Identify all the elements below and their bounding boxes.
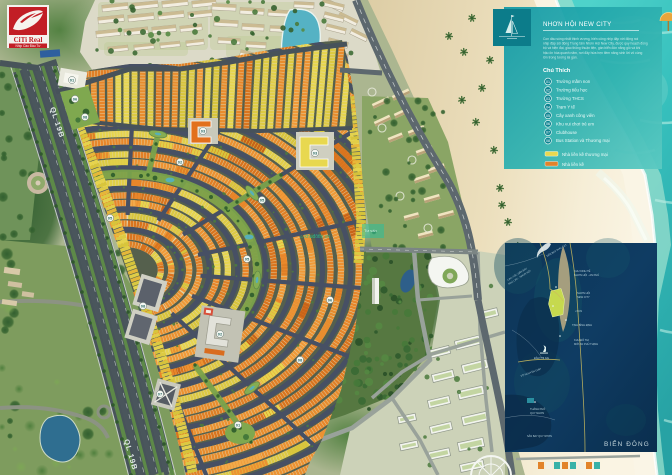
svg-text:ĐẦM THỊ NẠI: ĐẦM THỊ NẠI	[534, 357, 549, 360]
svg-text:Cây xanh công viên: Cây xanh công viên	[556, 113, 595, 118]
svg-text:NEW CITY: NEW CITY	[577, 295, 590, 299]
svg-text:Nhịp Cầu Đầu Tư: Nhịp Cầu Đầu Tư	[16, 44, 42, 48]
svg-text:08: 08	[141, 304, 146, 309]
svg-text:01: 01	[546, 80, 550, 84]
svg-text:bộ và hiện đại, giao thông thu: bộ và hiện đại, giao thông thuận tiện, g…	[543, 45, 640, 50]
svg-text:TỊNH BÌNH ĐỊNH: TỊNH BÌNH ĐỊNH	[572, 323, 592, 327]
svg-text:BIỂN ĐÔNG: BIỂN ĐÔNG	[604, 439, 650, 448]
svg-text:Nhà liền kề: Nhà liền kề	[562, 162, 585, 167]
svg-text:Trạm Y tế: Trạm Y tế	[556, 104, 576, 109]
svg-text:08: 08	[83, 115, 88, 120]
svg-text:02: 02	[178, 160, 183, 165]
svg-text:Con dầu sóng nhất thịnh vượng,: Con dầu sóng nhất thịnh vượng, hiến công…	[543, 37, 639, 41]
svg-text:04: 04	[546, 105, 550, 109]
svg-text:01: 01	[70, 78, 75, 83]
svg-text:CiTi Real: CiTi Real	[14, 36, 43, 44]
svg-text:08: 08	[546, 139, 550, 143]
svg-text:05: 05	[546, 114, 550, 118]
svg-text:08: 08	[298, 358, 303, 363]
svg-text:01: 01	[236, 423, 241, 428]
svg-text:• KCN: • KCN	[575, 309, 582, 313]
svg-text:Clubhouse: Clubhouse	[556, 130, 578, 135]
svg-text:06: 06	[546, 122, 550, 126]
svg-text:06: 06	[73, 97, 78, 102]
svg-text:Trường tiểu học: Trường tiểu học	[556, 88, 588, 93]
svg-text:02: 02	[546, 89, 550, 93]
svg-text:SÂN BAY QUY NHƠN: SÂN BAY QUY NHƠN	[527, 435, 552, 438]
svg-text:lớn trong tương lai gần.: lớn trong tương lai gần.	[543, 55, 578, 59]
svg-text:QUY NHƠN: QUY NHƠN	[530, 411, 544, 415]
svg-text:07: 07	[546, 131, 550, 135]
svg-text:Tư vấn: Tư vấn	[364, 228, 377, 233]
svg-text:05: 05	[260, 198, 265, 203]
svg-text:05: 05	[245, 257, 250, 262]
svg-text:Chú Thích: Chú Thích	[543, 68, 571, 74]
svg-text:Khu vui chơi trẻ em: Khu vui chơi trẻ em	[556, 121, 594, 126]
svg-text:02: 02	[218, 332, 223, 337]
svg-text:Bus Station và Thương mại: Bus Station và Thương mại	[556, 138, 610, 143]
svg-text:Trường THCS: Trường THCS	[556, 96, 584, 101]
svg-text:03: 03	[313, 151, 318, 156]
svg-text:⌂ khuđôthị.vn: ⌂ khuđôthị.vn	[300, 234, 330, 240]
svg-text:Trường mầm non: Trường mầm non	[556, 79, 591, 84]
svg-text:Nhà liền kề thương mại: Nhà liền kề thương mại	[562, 152, 608, 157]
svg-text:NHƠN HỘI NEW CITY: NHƠN HỘI NEW CITY	[543, 21, 612, 28]
svg-text:03: 03	[201, 129, 206, 134]
svg-text:06: 06	[328, 298, 333, 303]
svg-text:hậu ôn hòa quanh năm, nơi đây: hậu ôn hòa quanh năm, nơi đây hứa hẹn ti…	[543, 51, 642, 55]
svg-text:05: 05	[108, 216, 113, 221]
svg-text:03: 03	[546, 97, 550, 101]
svg-text:nhịp đập sôi động Trung tâm Nh: nhịp đập sôi động Trung tâm Nhơn Hội New…	[543, 42, 648, 46]
svg-text:07: 07	[158, 392, 163, 397]
